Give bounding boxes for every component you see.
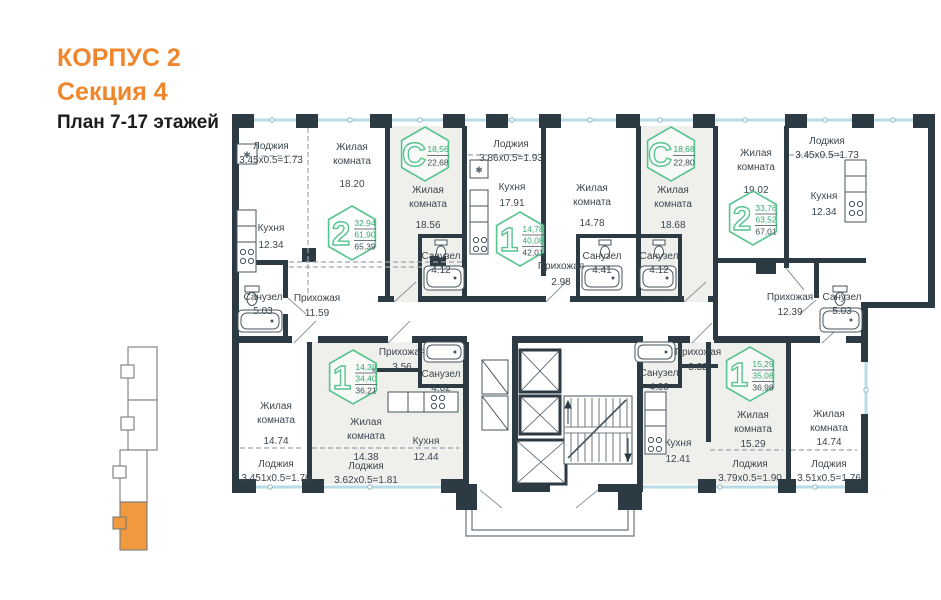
minimap-section-1[interactable]: [121, 347, 157, 400]
room-label: 3.62х0.5=1.81: [334, 475, 398, 486]
room-label: 2.98: [551, 277, 571, 288]
room-label: 3.451х0.5=1.76: [241, 473, 311, 484]
room-label: 12.34: [811, 207, 836, 218]
room-label: Прихожая: [767, 292, 813, 303]
room-label: 14.78: [579, 218, 604, 229]
badge-area-value: 34,40: [355, 374, 377, 384]
badge-area-value: 40,08: [522, 236, 544, 246]
badge-room-count: 1: [333, 359, 351, 396]
room-label: 4.12: [431, 265, 451, 276]
room-label: Прихожая: [538, 261, 584, 272]
stairs: [564, 396, 632, 464]
badge-room-count: 2: [733, 200, 751, 237]
room-label: 15.29: [740, 439, 765, 450]
room-label: комната: [333, 156, 371, 167]
room-label: 12.34: [258, 240, 283, 251]
badge-room-count: 1: [730, 356, 748, 393]
section-minimap: [113, 347, 157, 550]
floors-subtitle: План 7-17 этажей: [57, 113, 219, 132]
room-label: 11.59: [305, 308, 330, 319]
room-label: 4.41: [592, 265, 612, 276]
room-label: 3.56: [392, 362, 412, 373]
room-label: 3.86х0.5=1.93: [479, 153, 543, 164]
badge-room-count: 2: [332, 215, 350, 252]
badge-area-value: 18,68: [673, 144, 695, 154]
apartment-badge: 233,7663,5267,01: [730, 191, 777, 245]
elevator-core: [516, 350, 566, 484]
room-label: Лоджия: [811, 459, 846, 470]
room-label: 17.91: [499, 198, 524, 209]
room-label: 4.12: [649, 265, 669, 276]
room-label: Прихожая: [294, 293, 340, 304]
badge-area-value: 15,29: [752, 359, 774, 369]
room-label: 12.41: [665, 454, 690, 465]
minimap-section-4[interactable]: [113, 502, 147, 550]
room-label: 18.20: [339, 179, 364, 190]
room-label: Жилая: [737, 410, 769, 421]
room-label: Лоджия: [253, 141, 288, 152]
room-label: 4.06: [649, 382, 669, 393]
badge-area-value: 65,39: [354, 242, 376, 252]
badge-area-value: 18,56: [427, 144, 449, 154]
apartment-badge: 232,9461,9065,39: [329, 206, 376, 260]
minimap-section-2[interactable]: [121, 400, 157, 450]
room-label: Прихожая: [675, 347, 721, 358]
badge-area-value: 32,94: [354, 218, 376, 228]
room-label: Санузел: [583, 251, 622, 262]
room-label: Санузел: [823, 292, 862, 303]
room-label: Жилая: [657, 185, 689, 196]
floor-plan-page: КОРПУС 2 Секция 4 План 7-17 этажей: [0, 0, 941, 600]
entrance-porch: [466, 510, 634, 536]
room-label: 12.44: [413, 452, 438, 463]
room-label: комната: [257, 415, 295, 426]
room-label: Санузел: [422, 251, 461, 262]
room-label: Кухня: [499, 182, 526, 193]
building-title: КОРПУС 2: [57, 46, 219, 71]
room-label: 14.74: [263, 436, 288, 447]
room-label: Санузел: [244, 292, 283, 303]
room-label: 3.79х0.5=1.90: [718, 473, 782, 484]
svg-text:✱: ✱: [475, 165, 483, 175]
badge-area-value: 63,52: [755, 215, 777, 225]
room-label: Жилая: [813, 409, 845, 420]
room-label: Санузел: [422, 369, 461, 380]
room-label: Жилая: [350, 417, 382, 428]
room-label: 18.68: [660, 220, 685, 231]
badge-area-value: 61,90: [354, 230, 376, 240]
room-label: Лоджия: [732, 459, 767, 470]
badge-area-value: 42,01: [522, 248, 544, 258]
closet-icon: [482, 360, 508, 430]
badge-area-value: 22,68: [427, 158, 449, 168]
room-label: Лоджия: [493, 139, 528, 150]
room-label: Кухня: [258, 223, 285, 234]
room-label: комната: [654, 199, 692, 210]
room-label: 18.56: [415, 220, 440, 231]
badge-area-value: 35,08: [752, 371, 774, 381]
minimap-section-3[interactable]: [113, 450, 147, 502]
apartment-badge: 114,7840,0842,01: [497, 212, 544, 266]
badge-area-value: 14,38: [355, 362, 377, 372]
room-label: Жилая: [740, 148, 772, 159]
room-label: Жилая: [576, 183, 608, 194]
room-label: 3.45х0.5=1.73: [795, 150, 859, 161]
badge-area-value: 14,78: [522, 224, 544, 234]
room-label: комната: [734, 424, 772, 435]
room-label: Лоджия: [348, 461, 383, 472]
room-label: Жилая: [336, 142, 368, 153]
room-label: 4.02: [431, 383, 451, 394]
plan-header: КОРПУС 2 Секция 4 План 7-17 этажей: [57, 46, 219, 132]
room-label: Жилая: [260, 401, 292, 412]
room-label: комната: [347, 431, 385, 442]
room-label: Жилая: [412, 185, 444, 196]
room-label: Кухня: [413, 436, 440, 447]
badge-area-value: 33,76: [755, 203, 777, 213]
room-label: 5.03: [253, 306, 273, 317]
badge-room-count: С: [402, 136, 426, 173]
badge-area-value: 36,21: [355, 386, 377, 396]
room-label: 14.74: [816, 437, 841, 448]
room-label: 5.03: [832, 306, 852, 317]
badge-area-value: 36,98: [752, 383, 774, 393]
room-label: комната: [409, 199, 447, 210]
room-label: Санузел: [640, 251, 679, 262]
section-title: Секция 4: [57, 80, 219, 105]
room-label: 12.39: [777, 307, 802, 318]
room-label: комната: [573, 197, 611, 208]
room-label: Прихожая: [379, 347, 425, 358]
badge-room-count: 1: [500, 221, 518, 258]
room-label: комната: [810, 423, 848, 434]
room-label: Лоджия: [809, 136, 844, 147]
room-label: Кухня: [811, 191, 838, 202]
room-label: 3.51х0.5=1.76: [797, 473, 861, 484]
room-label: 3.45х0.5=1.73: [239, 155, 303, 166]
badge-room-count: С: [648, 136, 672, 173]
room-label: Санузел: [640, 368, 679, 379]
room-label: Лоджия: [258, 459, 293, 470]
badge-area-value: 67,01: [755, 227, 777, 237]
badge-area-value: 22,80: [673, 158, 695, 168]
room-label: 3.32: [688, 362, 708, 373]
room-label: Кухня: [665, 438, 692, 449]
room-label: комната: [737, 162, 775, 173]
